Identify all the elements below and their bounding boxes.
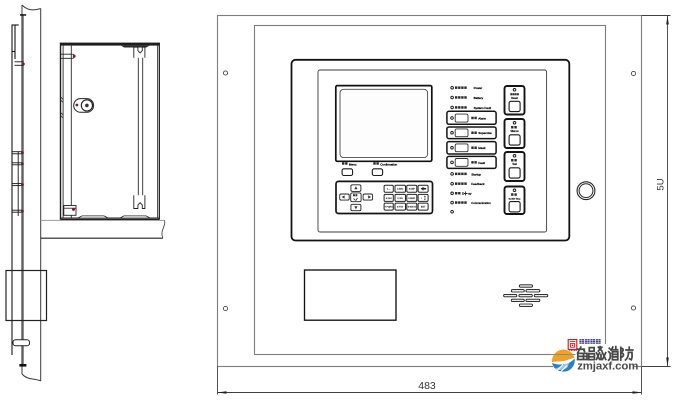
svg-text:1 .,: 1 .,	[387, 189, 390, 191]
svg-text:6 MNO: 6 MNO	[408, 198, 415, 200]
svg-text:7 PQRS: 7 PQRS	[385, 207, 394, 209]
svg-text:Reset: Reset	[511, 97, 518, 100]
svg-text:Confirmation: Confirmation	[380, 162, 397, 166]
svg-text:Feedback: Feedback	[471, 182, 485, 186]
svg-text:Power: Power	[474, 86, 483, 90]
svg-text:Silence: Silence	[510, 130, 519, 133]
svg-text:Supervise: Supervise	[478, 131, 492, 135]
svg-text:4 GHI: 4 GHI	[386, 198, 392, 200]
svg-text:Battery: Battery	[474, 96, 484, 100]
svg-text:Fault: Fault	[478, 161, 485, 165]
svg-text:Test: Test	[512, 163, 517, 166]
svg-text:System Fault: System Fault	[474, 106, 492, 110]
svg-text:5U: 5U	[656, 178, 667, 190]
svg-text:zmjaxf.com: zmjaxf.com	[577, 361, 638, 373]
svg-text:5 JKL: 5 JKL	[397, 198, 403, 200]
svg-text:3 DEF: 3 DEF	[409, 189, 416, 191]
svg-text:SL/SW Stop: SL/SW Stop	[509, 197, 522, 200]
svg-text:ay: ay	[468, 192, 472, 196]
svg-text:Menu: Menu	[349, 162, 357, 166]
svg-text:Mask: Mask	[478, 146, 486, 150]
svg-text:Communication: Communication	[471, 201, 491, 205]
svg-text:8 TUV: 8 TUV	[397, 207, 404, 209]
svg-text:ENT: ENT	[421, 207, 426, 209]
svg-text:483: 483	[418, 380, 436, 392]
svg-text:Alarm: Alarm	[478, 116, 486, 120]
svg-text:2 ABC: 2 ABC	[397, 188, 404, 191]
svg-text:9 WXYZ: 9 WXYZ	[408, 207, 417, 209]
svg-text:Startup: Startup	[471, 172, 481, 176]
